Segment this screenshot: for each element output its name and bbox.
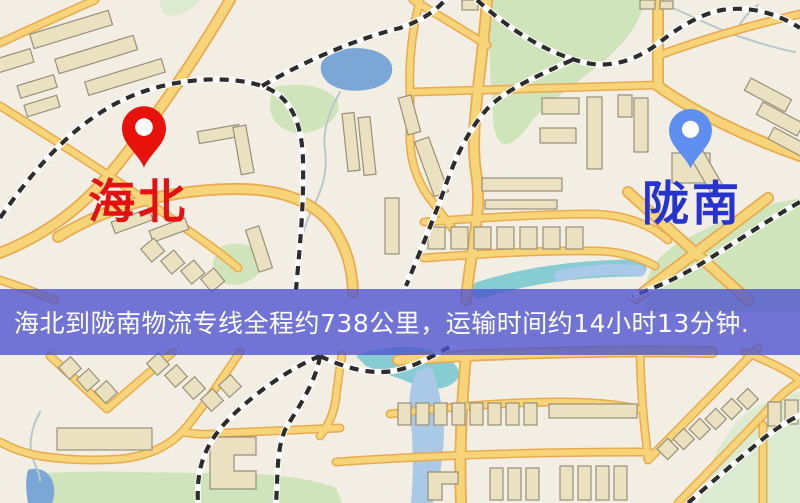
route-info-text: 海北到陇南物流专线全程约738公里，运输时间约14小时13分钟. <box>14 304 749 340</box>
map-canvas <box>0 0 800 503</box>
route-info-banner: 海北到陇南物流专线全程约738公里，运输时间约14小时13分钟. <box>0 289 800 355</box>
red-map-pin-icon <box>122 106 166 168</box>
pond <box>321 48 392 91</box>
park-bottom-left <box>45 472 342 503</box>
destination-label: 陇南 <box>642 181 742 228</box>
origin-label: 海北 <box>88 179 188 226</box>
map-viewport[interactable]: 海北 陇南 海北到陇南物流专线全程约738公里，运输时间约14小时13分钟. <box>0 0 800 503</box>
destination-pin[interactable] <box>668 109 713 169</box>
park-top-center <box>488 0 645 144</box>
origin-pin[interactable] <box>122 106 166 168</box>
blue-map-pin-icon <box>668 109 713 169</box>
